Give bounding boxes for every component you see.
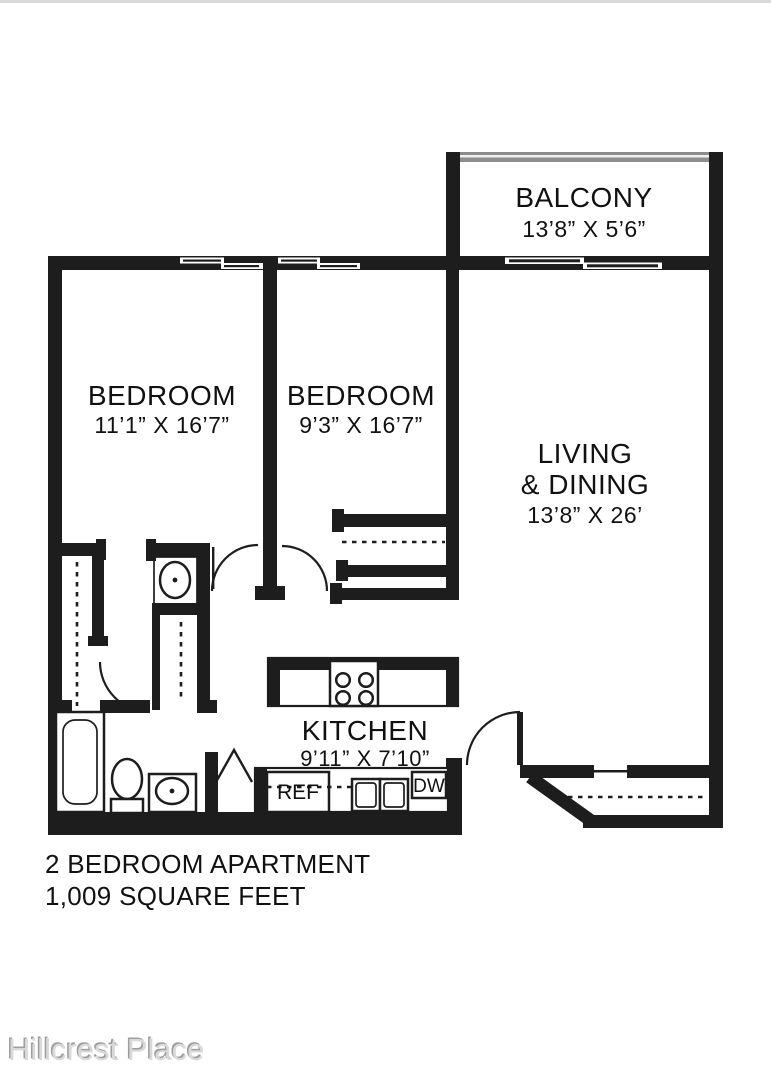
room-labels: BALCONY 13’8” X 5’6” BEDROOM 11’1” X 16’… (88, 182, 653, 804)
bedroom2-label: BEDROOM (287, 380, 435, 411)
summary-text: 2 BEDROOM APARTMENT 1,009 SQUARE FEET (45, 849, 370, 911)
kitchen-dimensions: 9’11” X 7’10” (300, 746, 430, 771)
living-label-line2: & DINING (521, 469, 649, 500)
bedroom1-door-arc (212, 545, 258, 591)
kitchen-counter-top (268, 658, 458, 706)
bedroom1-label: BEDROOM (88, 380, 236, 411)
kitchen-sink-icon (352, 779, 408, 811)
dishwasher-label: DW (413, 776, 445, 797)
living-dimensions: 13’8” X 26’ (527, 502, 642, 528)
entry-door-arc (467, 712, 520, 765)
bifold-door-icon (216, 750, 252, 782)
floor-plan-page: BALCONY 13’8” X 5’6” BEDROOM 11’1” X 16’… (0, 0, 771, 1080)
kitchen-label: KITCHEN (302, 715, 428, 746)
bedroom2-door-arc (282, 546, 327, 591)
property-watermark: Hillcrest Place (8, 1032, 204, 1068)
bedroom1-dimensions: 11’1” X 16’7” (94, 412, 229, 438)
vanity-sink-icon (154, 557, 197, 605)
summary-line1: 2 BEDROOM APARTMENT (45, 849, 370, 879)
toilet-icon (111, 759, 143, 813)
refrigerator-label: REF (277, 781, 319, 804)
balcony-label: BALCONY (515, 182, 652, 213)
bedroom2-dimensions: 9’3” X 16’7” (299, 412, 423, 438)
bathtub-icon (56, 712, 104, 812)
summary-line2: 1,009 SQUARE FEET (45, 881, 306, 911)
balcony-dimensions: 13’8” X 5’6” (522, 216, 646, 242)
floor-plan-drawing: BALCONY 13’8” X 5’6” BEDROOM 11’1” X 16’… (0, 0, 771, 1080)
living-label-line1: LIVING (538, 438, 633, 469)
bathroom-sink-icon (149, 774, 196, 812)
entry-door-leaf (517, 712, 523, 765)
stove-icon (330, 661, 378, 706)
